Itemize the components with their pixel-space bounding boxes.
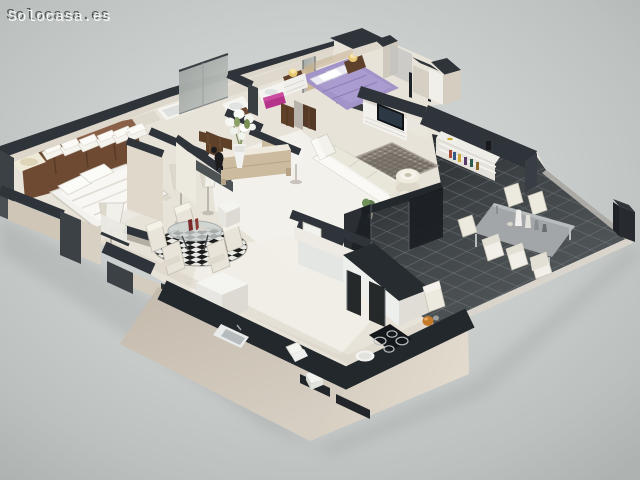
svg-text:Solocasa.es: Solocasa.es xyxy=(8,8,112,26)
